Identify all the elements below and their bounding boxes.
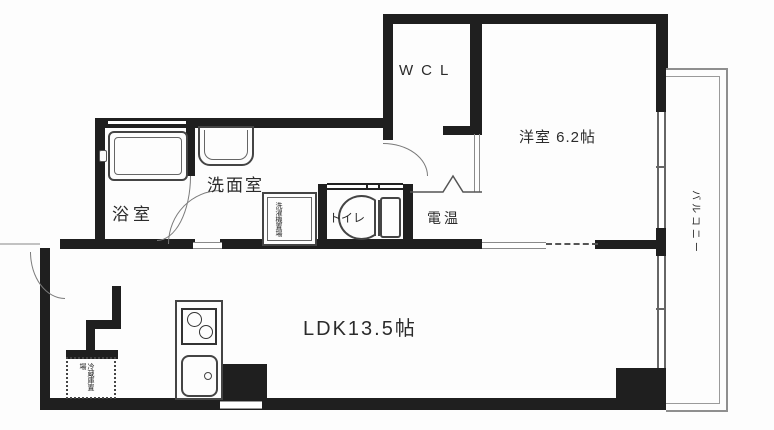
washroom-label: 洗面室	[207, 171, 264, 196]
wall-bath-left	[95, 128, 105, 248]
toilet-door-tick-2	[378, 184, 380, 189]
window-yoshitsu	[657, 112, 666, 228]
fridge-space-label: 冷蔵庫置場	[78, 363, 94, 397]
laundry-space-box: 洗濯機置場	[262, 192, 317, 246]
toilet-door-line	[327, 183, 403, 190]
wall-washroom-bottom-right	[220, 239, 482, 249]
vanity-sink-inner-line	[204, 130, 248, 160]
dashed-opening-line	[546, 243, 598, 245]
entrance-door-arc	[30, 252, 65, 299]
toilet-label: トイレ	[329, 209, 365, 226]
sliding-partition-line	[482, 242, 546, 249]
window-bathroom	[108, 121, 186, 124]
stove-icon	[181, 308, 217, 345]
vanity-sink-icon	[198, 126, 254, 166]
kitchen-sink-icon	[181, 355, 218, 397]
bottom-wall-hatch	[220, 401, 262, 409]
bathtub-icon	[108, 131, 188, 181]
toilet-tank-icon	[380, 197, 401, 238]
kitchen-faucet-icon	[204, 372, 212, 380]
wall-genkan-horizontal	[86, 320, 121, 329]
floor-plan: 洗濯機置場 冷蔵庫置場 浴室 洗面室 WCL 洋室 6.2帖 トイレ 電温 LD…	[0, 0, 774, 430]
wall-top-upper-block	[383, 14, 668, 24]
kitchen-counter-block	[222, 364, 267, 400]
balcony-label: バルコニー	[690, 183, 705, 263]
bath-tap-icon	[99, 150, 107, 162]
wall-toilet-left	[318, 184, 327, 248]
window-ldk	[657, 256, 666, 368]
fridge-space-box: 冷蔵庫置場	[66, 357, 116, 399]
ldk-label: LDK13.5帖	[303, 312, 417, 341]
wall-ldk-top-right	[595, 240, 668, 249]
wall-bottom	[40, 398, 668, 410]
laundry-space-label: 洗濯機置場	[274, 202, 282, 237]
water-heater-label: 電温	[427, 208, 461, 228]
wall-bottom-right-block	[616, 368, 668, 402]
folding-door-icon	[410, 172, 482, 196]
western-room-label: 洋室 6.2帖	[519, 126, 596, 147]
stove-burner-1	[187, 312, 202, 327]
toilet-door-tick-1	[366, 184, 368, 189]
wall-wcl-yoshitsu-divider	[470, 24, 482, 134]
bathroom-label: 浴室	[112, 200, 154, 225]
wcl-label: WCL	[399, 62, 456, 79]
stove-burner-2	[199, 325, 213, 339]
exterior-guide-line	[0, 243, 40, 245]
bathtub-inner-line	[114, 137, 182, 175]
